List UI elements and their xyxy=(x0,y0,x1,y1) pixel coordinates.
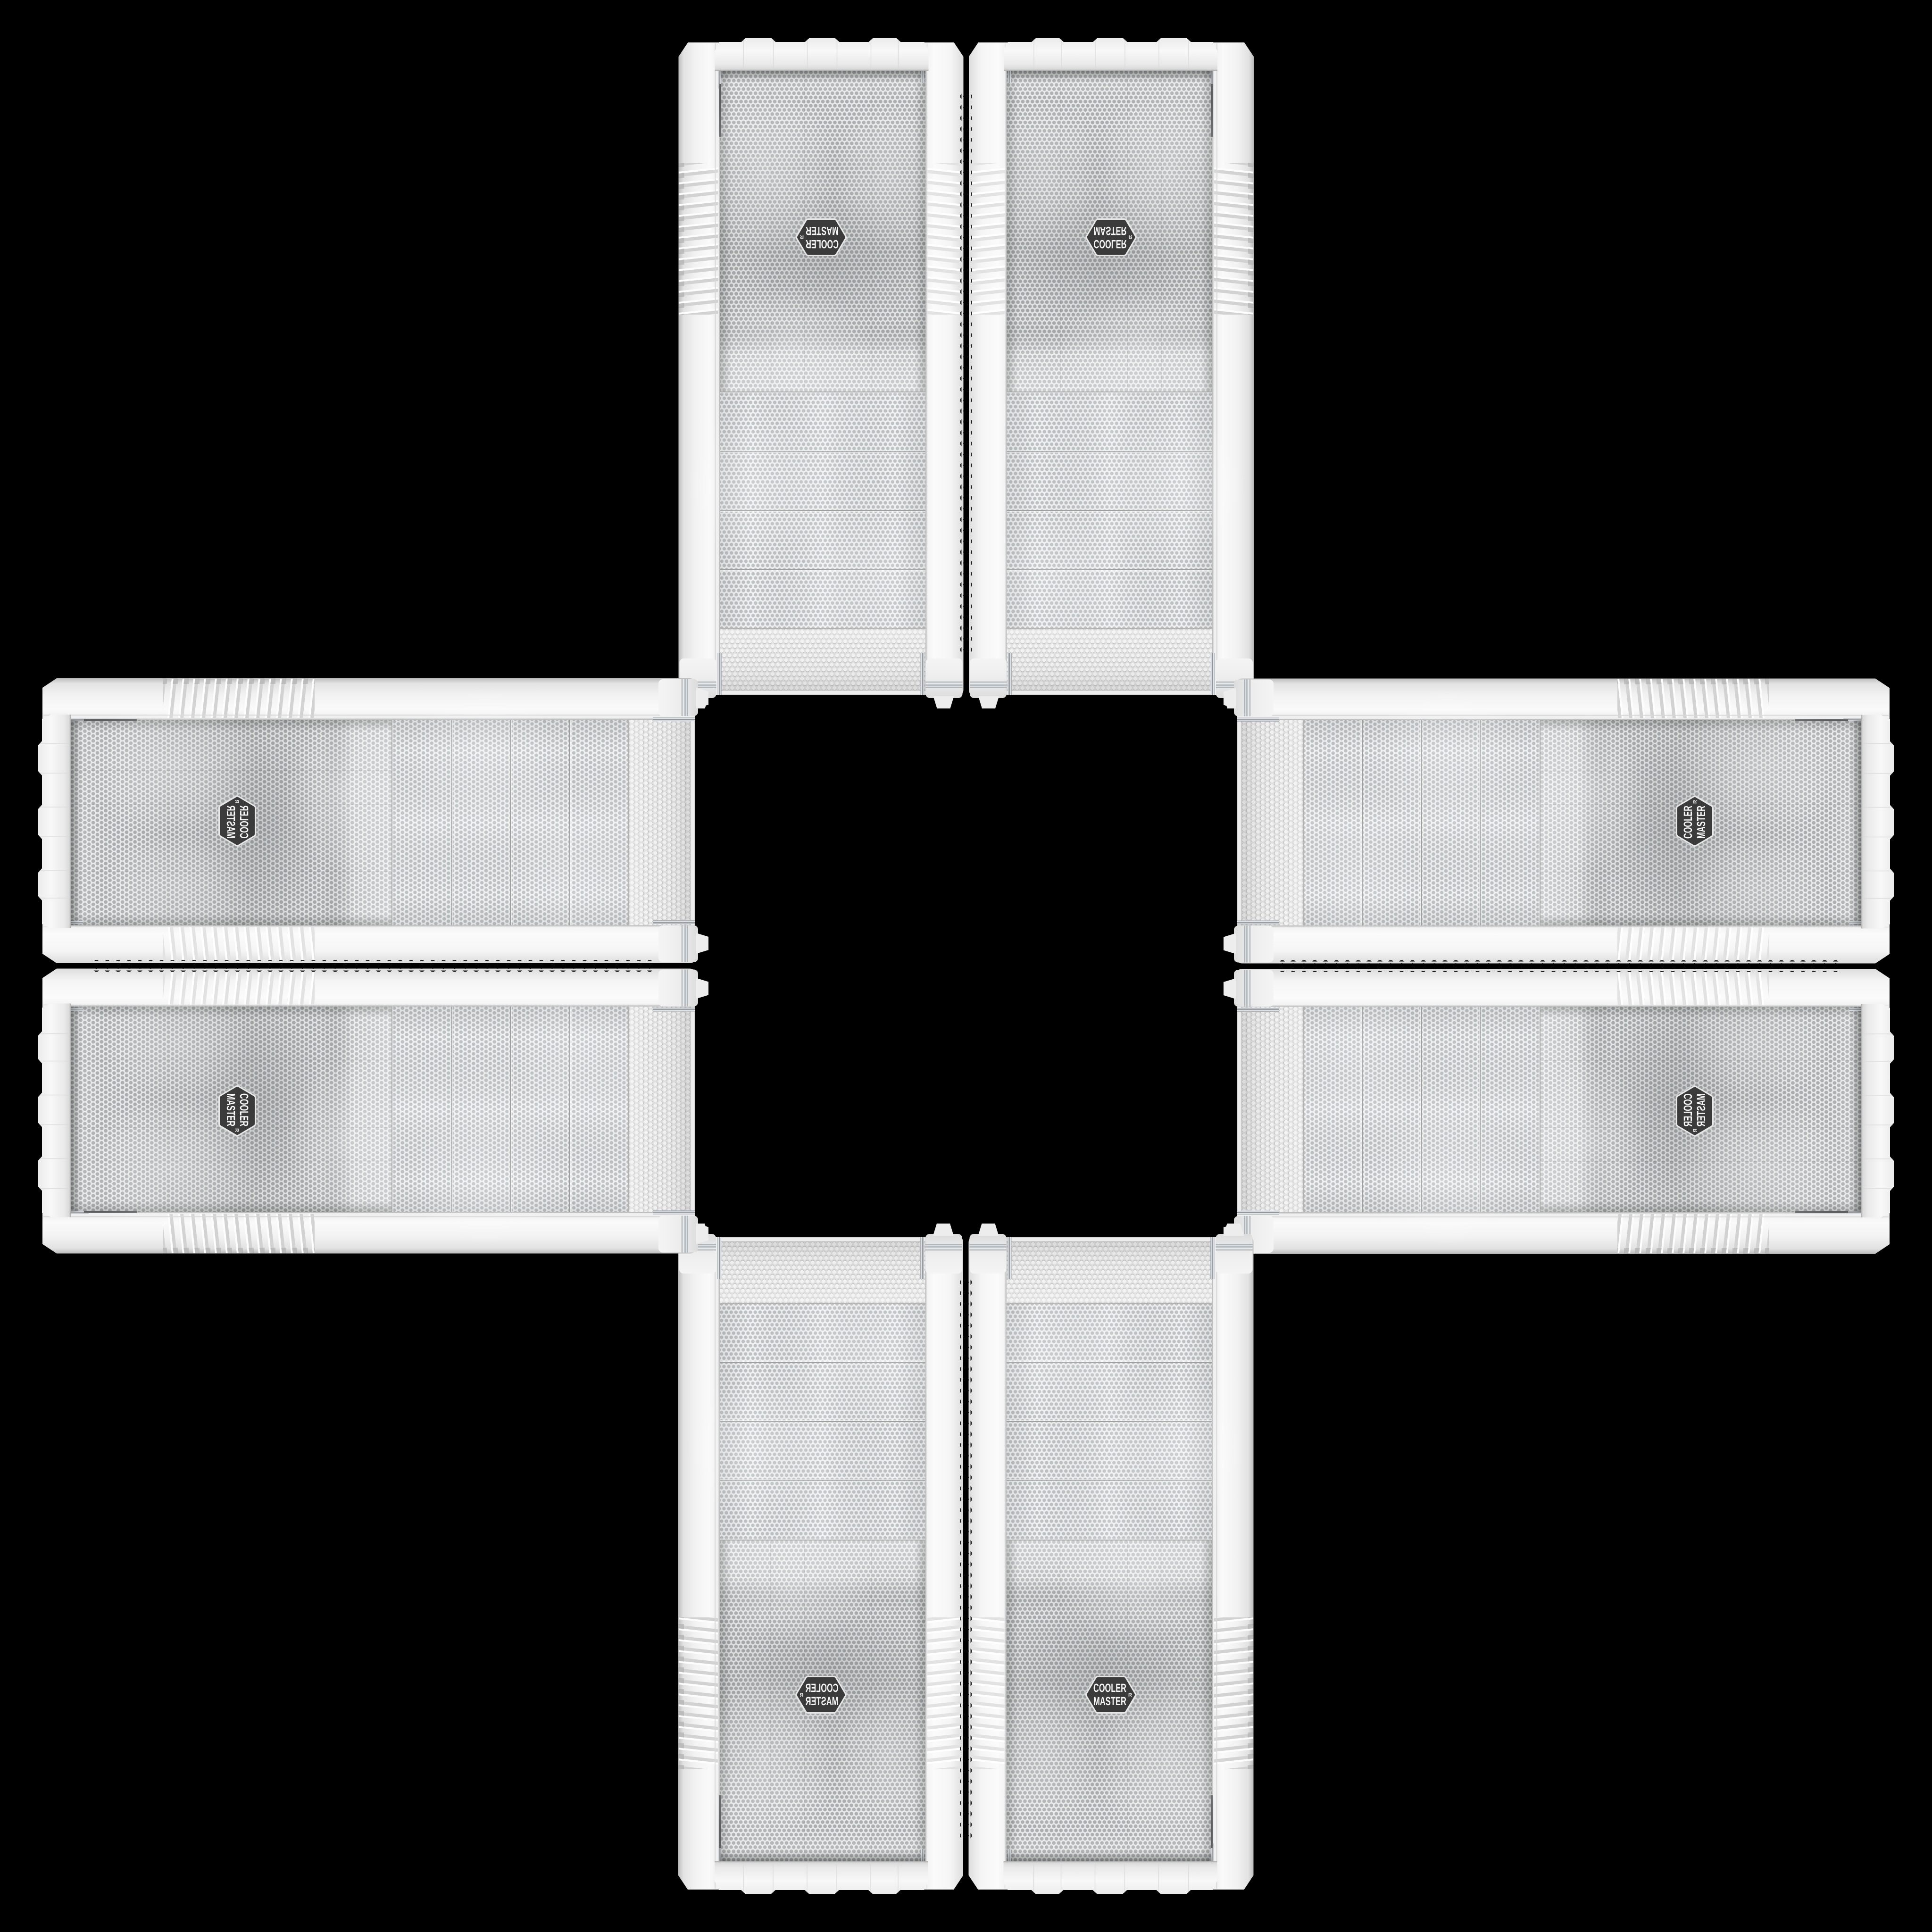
svg-text:COOLER: COOLER xyxy=(806,237,839,250)
svg-text:MASTER: MASTER xyxy=(806,224,839,237)
svg-text:R: R xyxy=(800,234,804,240)
